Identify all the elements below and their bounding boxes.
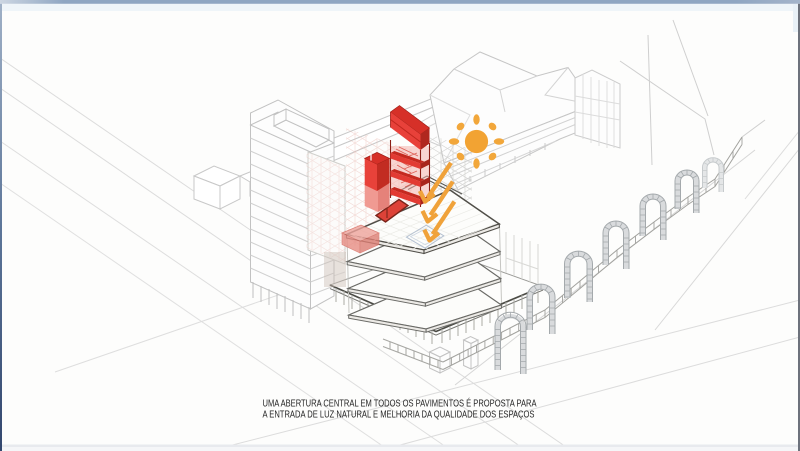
svg-text:UMA ABERTURA CENTRAL EM TODOS: UMA ABERTURA CENTRAL EM TODOS OS PAVIMEN… (263, 396, 537, 409)
svg-text:A ENTRADA DE LUZ NATURAL E MEL: A ENTRADA DE LUZ NATURAL E MELHORIA DA Q… (263, 410, 535, 421)
